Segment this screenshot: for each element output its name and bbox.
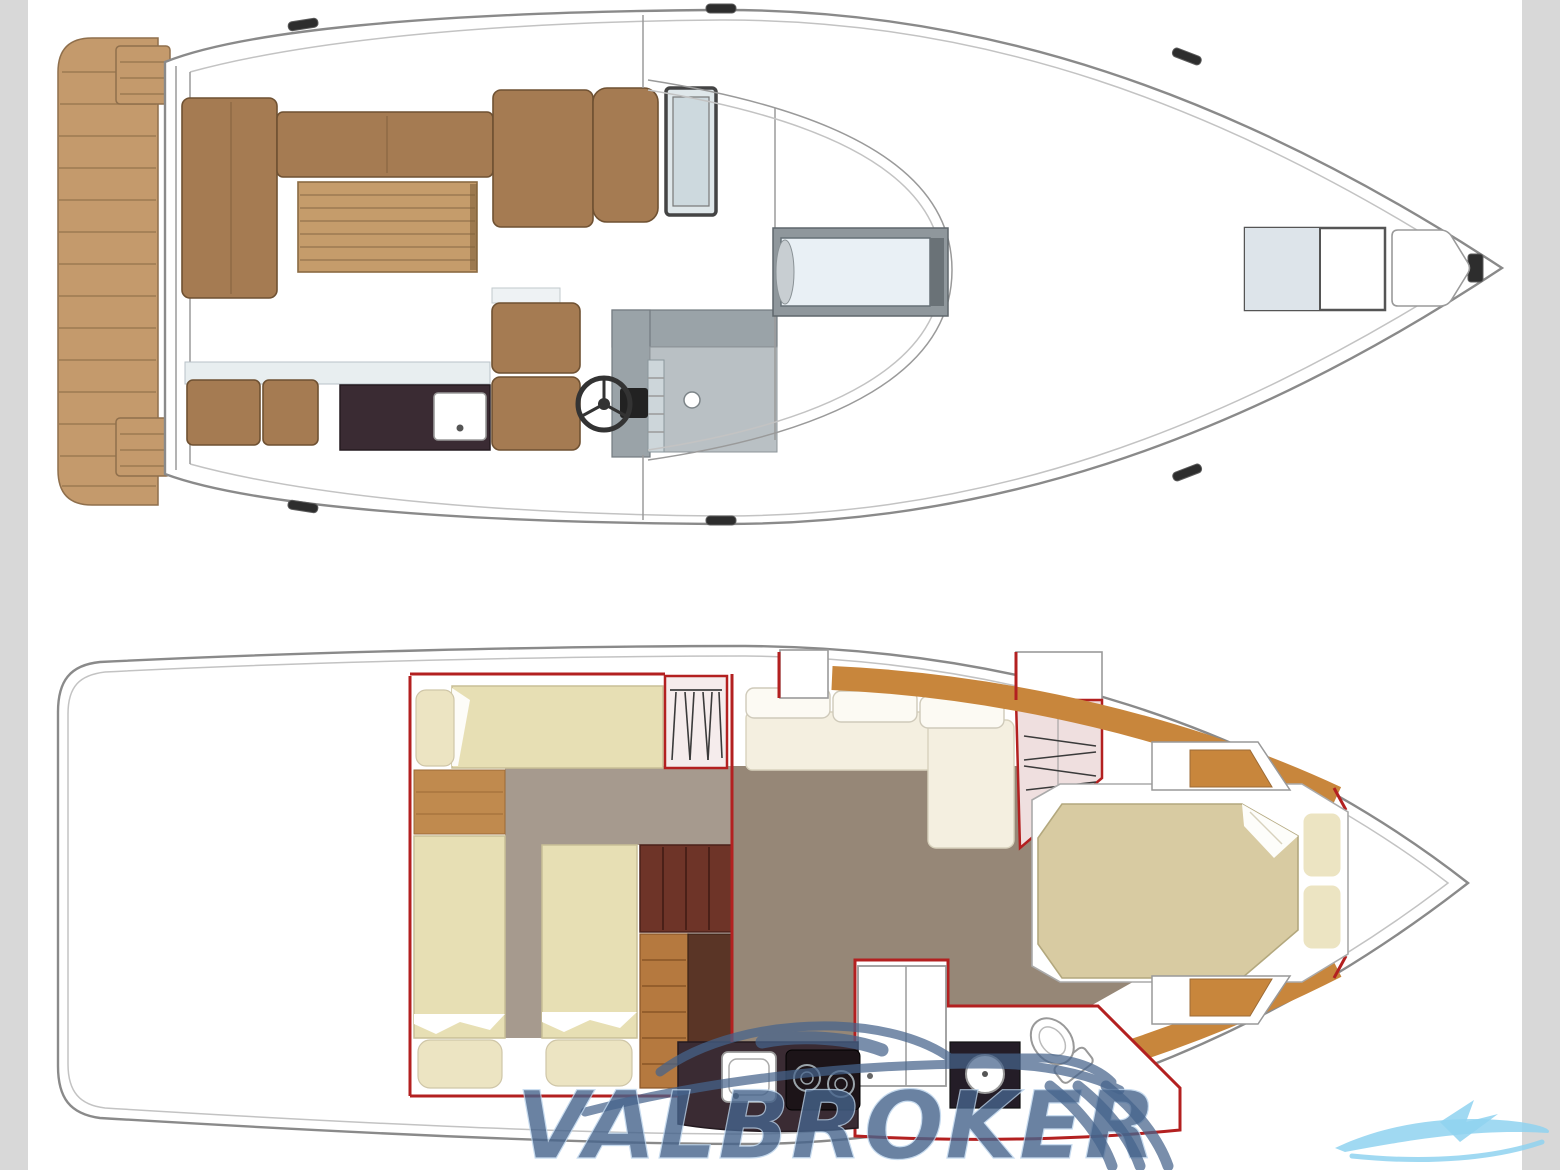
guest-berth-mid [542, 845, 637, 1086]
guest-cabin-wood-floor [414, 770, 505, 834]
side-deck-step [780, 650, 828, 698]
guest-berth-aft [416, 686, 663, 768]
berth-pillow [416, 690, 454, 766]
floorplan-drawing: VALBROKER [0, 0, 1560, 1170]
cleat-icon [706, 516, 736, 525]
cleat-icon [1172, 463, 1203, 482]
master-cabin [1032, 742, 1348, 1024]
swim-platform [58, 38, 170, 505]
cockpit-wet-bar [340, 385, 490, 450]
helm-companion-cushion [492, 377, 580, 450]
companionway-hatch [773, 228, 948, 316]
sofa-chaise [928, 720, 1014, 848]
console-knob [684, 392, 700, 408]
aft-bench-cushion [263, 380, 318, 445]
guest-cabin [414, 676, 732, 1088]
bed-pillow [1302, 884, 1342, 950]
cockpit-sofa-back [277, 112, 493, 177]
left-margin-band [0, 0, 28, 1170]
foredeck [1245, 228, 1470, 310]
helm-companion-cushion [492, 303, 580, 373]
guest-berth-port [414, 836, 505, 1088]
lower-deck-plan [58, 646, 1468, 1144]
berth-pillow [418, 1040, 502, 1088]
bedside-shelf-bottom [1152, 976, 1290, 1024]
bed-pillow [1302, 812, 1342, 878]
boat-floorplan-page: VALBROKER [0, 0, 1560, 1170]
hanging-locker [665, 676, 727, 768]
companionway-steps [648, 360, 664, 452]
cockpit-table [298, 182, 477, 272]
transom-step-upper [116, 46, 170, 104]
cockpit-corner-seat [593, 88, 658, 222]
cleat-icon [706, 4, 736, 13]
watermark-text: VALBROKER [516, 1072, 1157, 1170]
bedside-shelf-top [1152, 742, 1290, 790]
wet-bar-sink [434, 393, 486, 440]
sofa-back-cushion [833, 691, 917, 722]
transom-step-lower [116, 418, 170, 476]
cockpit-sofa-port [182, 98, 277, 298]
console-panel [650, 347, 777, 452]
cleat-icon [1171, 47, 1202, 66]
side-window [666, 88, 716, 215]
aft-bench-cushion [187, 380, 260, 445]
right-margin-band [1522, 0, 1560, 1170]
cockpit-seat-starboard [493, 90, 593, 227]
main-deck-plan [58, 4, 1502, 525]
foredeck-sunpad [1245, 228, 1385, 310]
corner-logo-swoosh-icon [1335, 1100, 1549, 1160]
helm-seat-base [492, 288, 560, 303]
